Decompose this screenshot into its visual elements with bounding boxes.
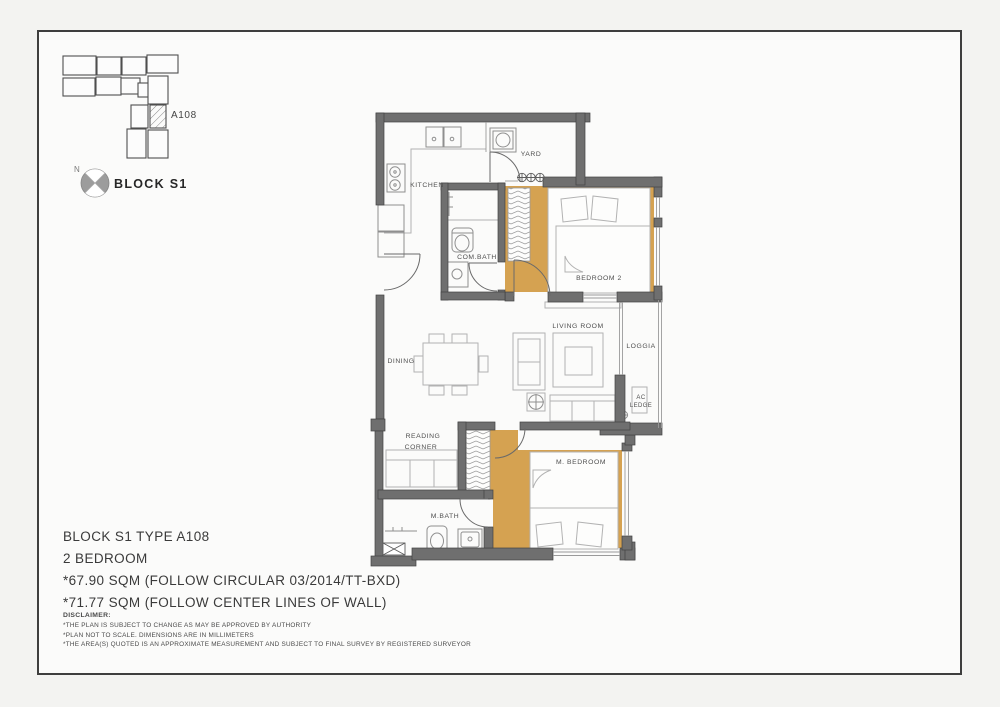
bathroom-sink-basin <box>452 269 462 279</box>
unit-bedroom-count: 2 BEDROOM <box>63 548 401 570</box>
wall <box>520 422 630 430</box>
unit-info-block: BLOCK S1 TYPE A108 2 BEDROOM *67.90 SQM … <box>63 526 401 614</box>
toilet-bowl <box>455 235 469 251</box>
wall <box>484 490 493 499</box>
coffee-table <box>565 347 592 375</box>
disclaimer-line: *THE AREA(S) QUOTED IS AN APPROXIMATE ME… <box>63 641 471 648</box>
dining-chair <box>452 334 467 343</box>
unit-area-circular: *67.90 SQM (FOLLOW CIRCULAR 03/2014/TT-B… <box>63 570 401 592</box>
toilet-bowl <box>431 533 444 549</box>
room-label-reading-line1: READING <box>406 433 441 440</box>
wall <box>376 295 384 419</box>
stove-burner <box>394 171 396 173</box>
pillow <box>561 196 588 222</box>
disclaimer-line: *THE PLAN IS SUBJECT TO CHANGE AS MAY BE… <box>63 622 471 629</box>
wall <box>498 183 505 262</box>
entrance-door-arc <box>384 254 420 290</box>
room-label-living-room: LIVING ROOM <box>552 323 603 330</box>
key-plan-unit <box>131 105 148 128</box>
north-label: N <box>74 165 80 174</box>
key-plan-unit <box>63 78 95 96</box>
room-label-master-bath: M.BATH <box>431 513 459 520</box>
key-plan-unit <box>63 56 96 75</box>
wall <box>441 183 505 190</box>
rug <box>553 333 603 387</box>
key-plan-unit <box>147 55 178 73</box>
pillow <box>591 196 618 222</box>
wall <box>378 490 490 499</box>
stove-burner <box>390 180 400 190</box>
master-bath-door-arc <box>460 499 488 527</box>
unit-title: BLOCK S1 TYPE A108 <box>63 526 401 548</box>
room-label-loggia: LOGGIA <box>626 343 655 350</box>
vanity-tap <box>468 537 472 541</box>
key-plan-unit <box>97 57 121 75</box>
yard-door-arc <box>490 152 520 182</box>
wall <box>412 548 553 560</box>
disclaimer-line: *PLAN NOT TO SCALE. DIMENSIONS ARE IN MI… <box>63 632 471 639</box>
unit-area-centerline: *71.77 SQM (FOLLOW CENTER LINES OF WALL) <box>63 592 401 614</box>
wall <box>576 113 585 185</box>
beds <box>530 188 650 549</box>
vanity-basin <box>461 532 479 547</box>
key-plan-unit-a108-highlight <box>150 105 166 128</box>
pillow <box>536 522 563 547</box>
dining-chair <box>429 386 444 395</box>
sink-drain <box>450 137 454 141</box>
bedroom2-wardrobe-hatch <box>508 188 530 261</box>
disclaimer-heading: DISCLAIMER: <box>63 612 471 619</box>
block-title: BLOCK S1 <box>114 177 188 191</box>
pillow <box>576 522 603 547</box>
key-plan-unit <box>122 57 146 75</box>
bathroom-sink <box>447 262 468 287</box>
washing-machine <box>490 128 516 152</box>
combath-door-arc <box>469 263 497 291</box>
dining-chair <box>452 386 467 395</box>
wall <box>654 218 662 227</box>
master-wardrobe-hatch <box>466 430 490 490</box>
dining-chair <box>414 356 423 372</box>
wall <box>505 292 514 301</box>
room-label-bedroom2: BEDROOM 2 <box>576 275 622 282</box>
room-label-ac-ledge-line2: LEDGE <box>630 403 652 409</box>
wall <box>548 292 583 302</box>
wall <box>622 536 632 550</box>
wall <box>543 177 662 187</box>
stove-burner <box>394 184 396 186</box>
page: { "key_plan": { "unit_label": "A108", "n… <box>0 0 1000 707</box>
sink-drain <box>432 137 436 141</box>
stove-burner <box>390 167 400 177</box>
dining-chair <box>429 334 444 343</box>
wall <box>615 375 625 423</box>
fridge <box>378 205 404 231</box>
room-label-kitchen: KITCHEN <box>410 182 444 189</box>
room-label-master-bedroom: M. BEDROOM <box>556 459 606 466</box>
wall <box>625 435 635 445</box>
key-plan <box>63 55 178 158</box>
wall <box>484 527 493 548</box>
key-plan-unit <box>96 77 121 95</box>
wall <box>441 292 505 300</box>
room-label-dining: DINING <box>387 358 414 365</box>
wall <box>441 183 448 300</box>
north-compass-icon <box>81 169 109 197</box>
stove <box>387 164 405 192</box>
key-plan-unit <box>127 129 146 158</box>
wall <box>376 113 590 122</box>
wall <box>376 113 384 205</box>
wall <box>371 419 385 431</box>
room-label-ac-ledge-line1: AC <box>636 395 645 401</box>
room-label-reading-line2: CORNER <box>405 444 438 451</box>
sofa <box>550 395 615 421</box>
wall <box>458 422 466 492</box>
key-plan-unit <box>148 130 168 158</box>
room-label-com-bath: COM.BATH <box>457 254 497 261</box>
room-label-yard: YARD <box>521 151 542 158</box>
washing-machine-drum <box>496 133 510 147</box>
wall <box>654 286 662 300</box>
reading-bench <box>386 450 457 487</box>
window-console <box>545 302 621 308</box>
cabinet <box>378 232 404 257</box>
dining-chair <box>479 356 488 372</box>
dining-table <box>423 343 478 385</box>
disclaimer-block: DISCLAIMER: *THE PLAN IS SUBJECT TO CHAN… <box>63 612 471 651</box>
key-plan-unit <box>121 78 140 94</box>
key-plan-unit-label: A108 <box>171 110 197 121</box>
key-plan-unit <box>148 76 168 104</box>
